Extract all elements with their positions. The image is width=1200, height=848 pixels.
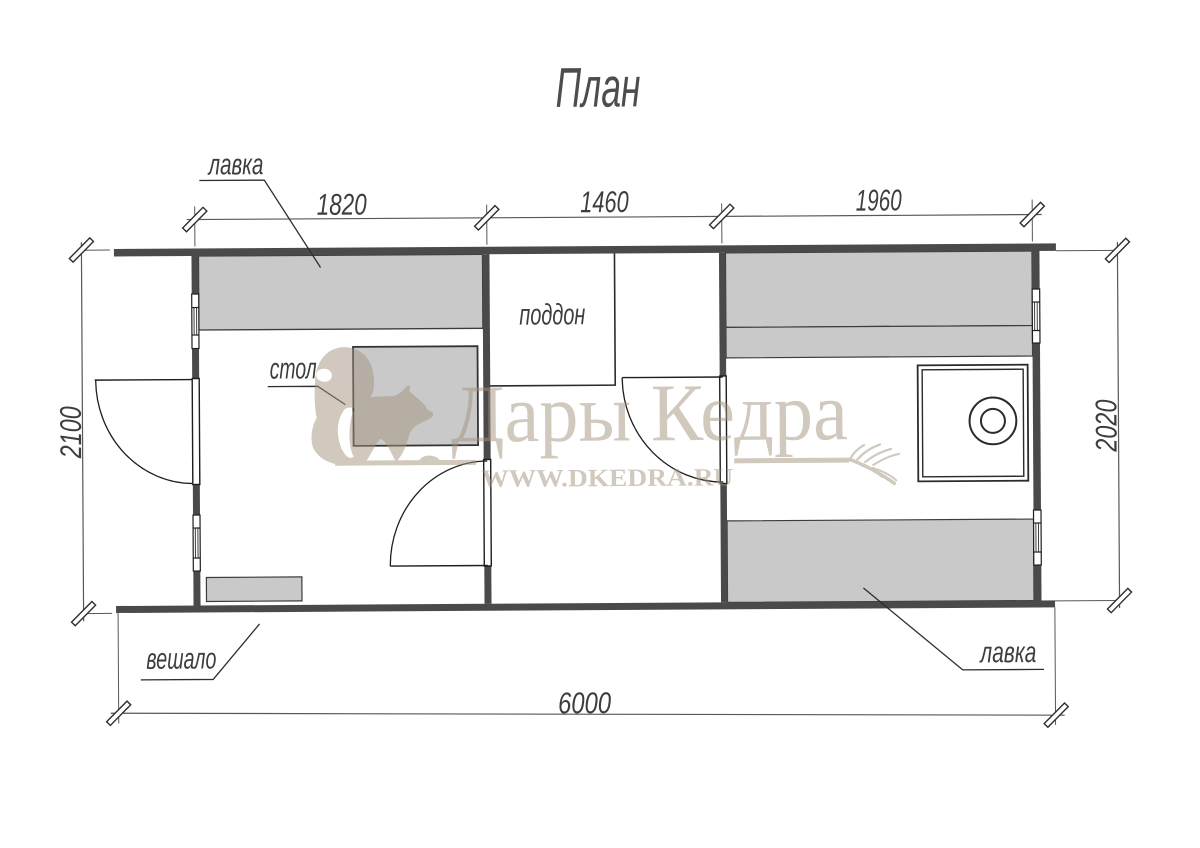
svg-text:План: План [555, 55, 640, 119]
svg-text:2100: 2100 [54, 406, 88, 459]
svg-text:Дары Кедра: Дары Кедра [451, 366, 849, 459]
svg-text:6000: 6000 [558, 687, 611, 720]
svg-text:WWW.DKEDRA.RU: WWW.DKEDRA.RU [481, 464, 733, 492]
svg-text:стол: стол [270, 352, 317, 385]
svg-text:вешало: вешало [146, 642, 216, 675]
svg-text:1820: 1820 [317, 189, 367, 222]
svg-text:1460: 1460 [580, 186, 629, 219]
svg-text:1960: 1960 [856, 184, 902, 217]
svg-text:лавка: лавка [207, 148, 264, 181]
svg-text:2020: 2020 [1090, 399, 1124, 452]
svg-text:лавка: лавка [979, 636, 1037, 669]
svg-text:поддон: поддон [519, 298, 585, 331]
